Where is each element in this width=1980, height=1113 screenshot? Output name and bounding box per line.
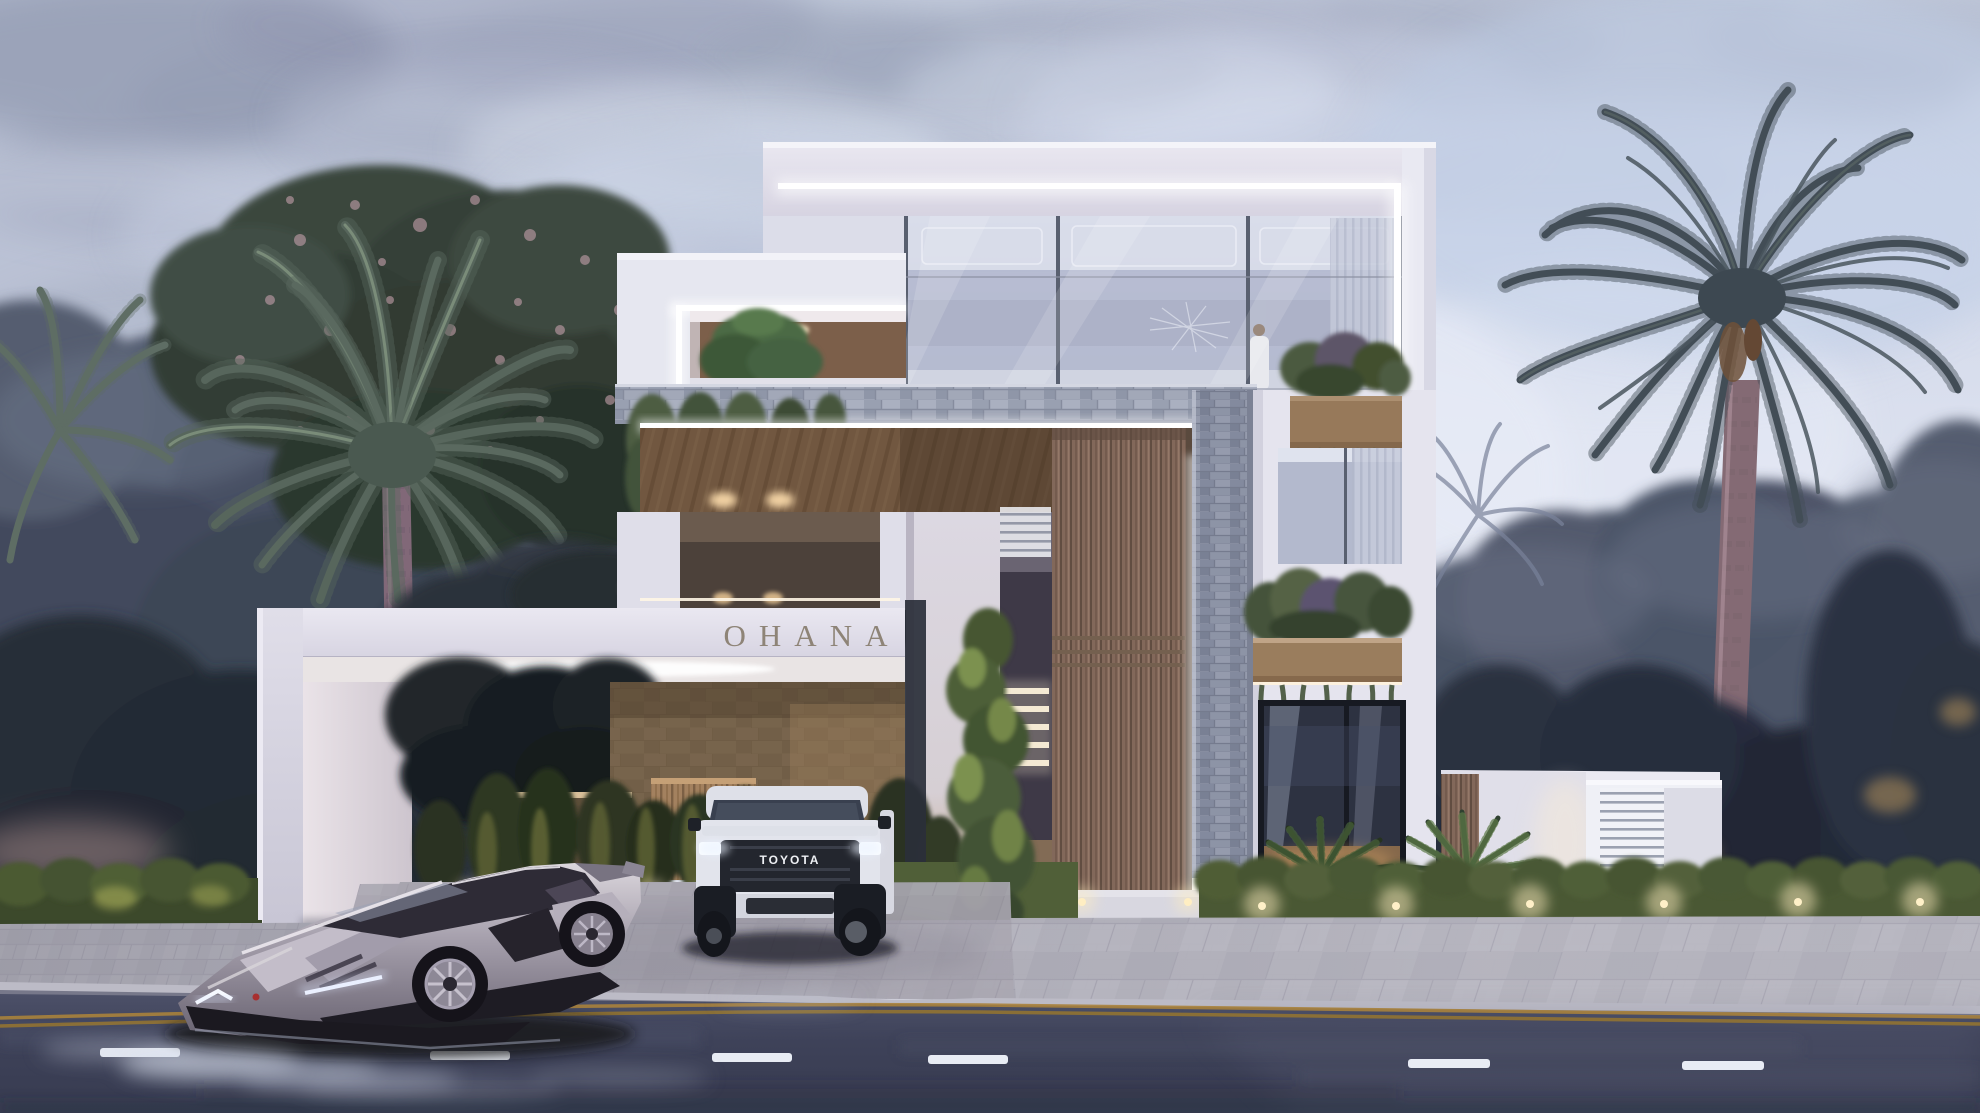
svg-text:TOYOTA: TOYOTA bbox=[760, 853, 821, 867]
svg-text:OHANA: OHANA bbox=[724, 618, 901, 653]
